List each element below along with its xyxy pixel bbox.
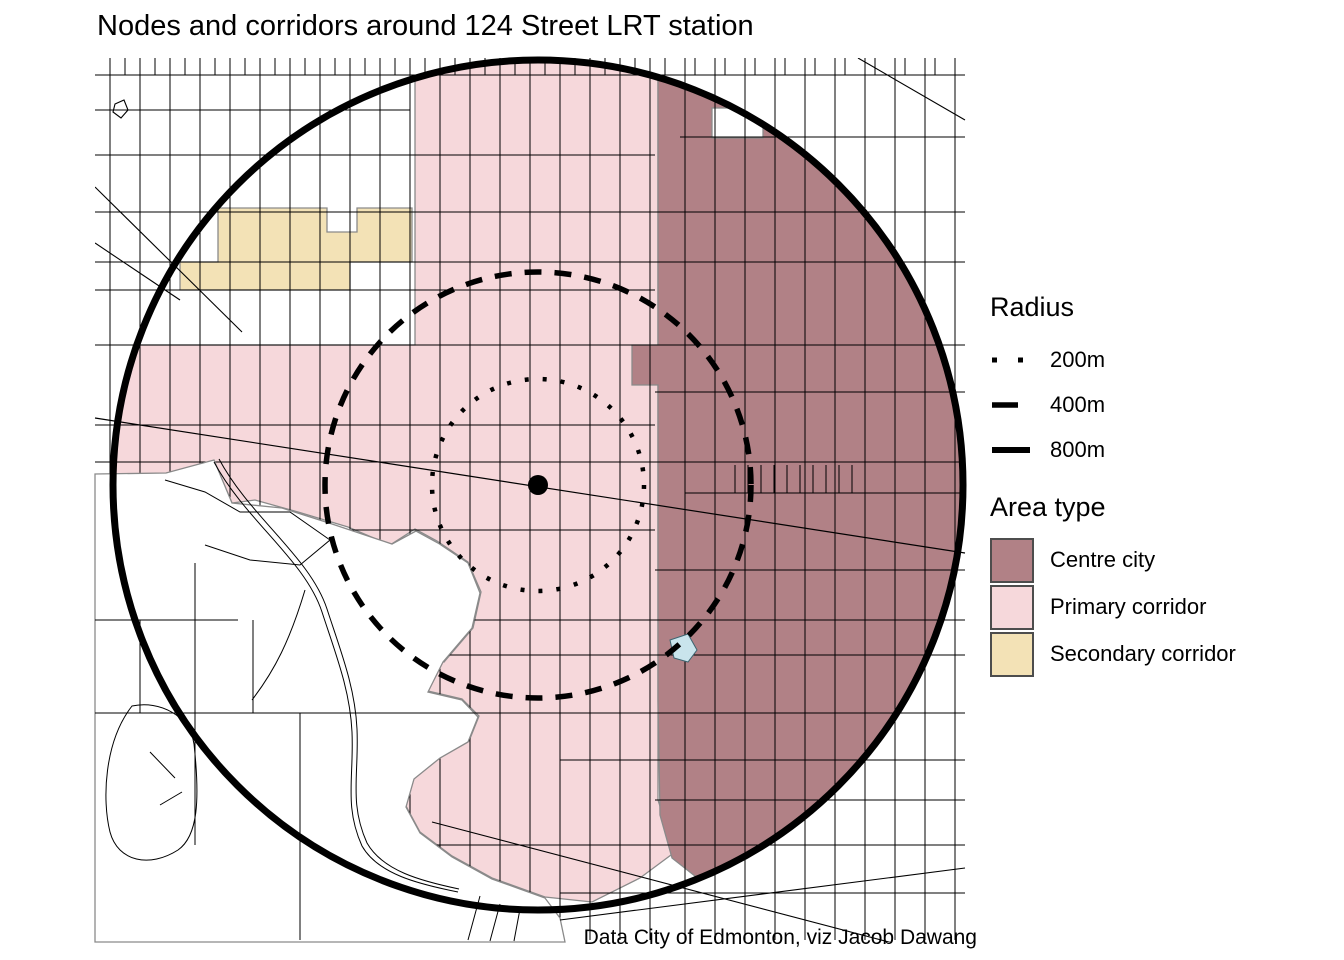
legend-radius: Radius 200m 400m 800m [990, 292, 1340, 472]
legend-label-800m: 800m [1050, 437, 1105, 463]
figure-title: Nodes and corridors around 124 Street LR… [97, 10, 754, 43]
legend-radius-title: Radius [990, 292, 1340, 323]
dotted-line-icon [990, 355, 1032, 365]
legend-area-type-title: Area type [990, 492, 1340, 523]
secondary-corridor-swatch [990, 632, 1034, 677]
solid-line-icon [990, 445, 1032, 455]
legend-label-secondary-corridor: Secondary corridor [1050, 641, 1236, 667]
primary-corridor-swatch [990, 585, 1034, 630]
region-centre-city [632, 50, 1005, 905]
data-credit: Data City of Edmonton, viz Jacob Dawang [584, 926, 977, 950]
legend-label-200m: 200m [1050, 347, 1105, 373]
legend-item-centre-city: Centre city [990, 537, 1340, 583]
map [0, 0, 1344, 960]
legend-label-400m: 400m [1050, 392, 1105, 418]
legend-label-centre-city: Centre city [1050, 547, 1155, 573]
region-secondary-corridor [180, 208, 412, 290]
centre-city-swatch [990, 538, 1034, 583]
legend-item-secondary-corridor: Secondary corridor [990, 631, 1340, 677]
dashed-line-icon [990, 400, 1032, 410]
legend-item-800m: 800m [990, 427, 1340, 472]
legend-label-primary-corridor: Primary corridor [1050, 594, 1206, 620]
legend-item-primary-corridor: Primary corridor [990, 584, 1340, 630]
figure: Nodes and corridors around 124 Street LR… [0, 0, 1344, 960]
legend-item-400m: 400m [990, 382, 1340, 427]
station-point [528, 475, 548, 495]
legend-area-type: Area type Centre city Primary corridor S… [990, 492, 1340, 678]
legend-item-200m: 200m [990, 337, 1340, 382]
